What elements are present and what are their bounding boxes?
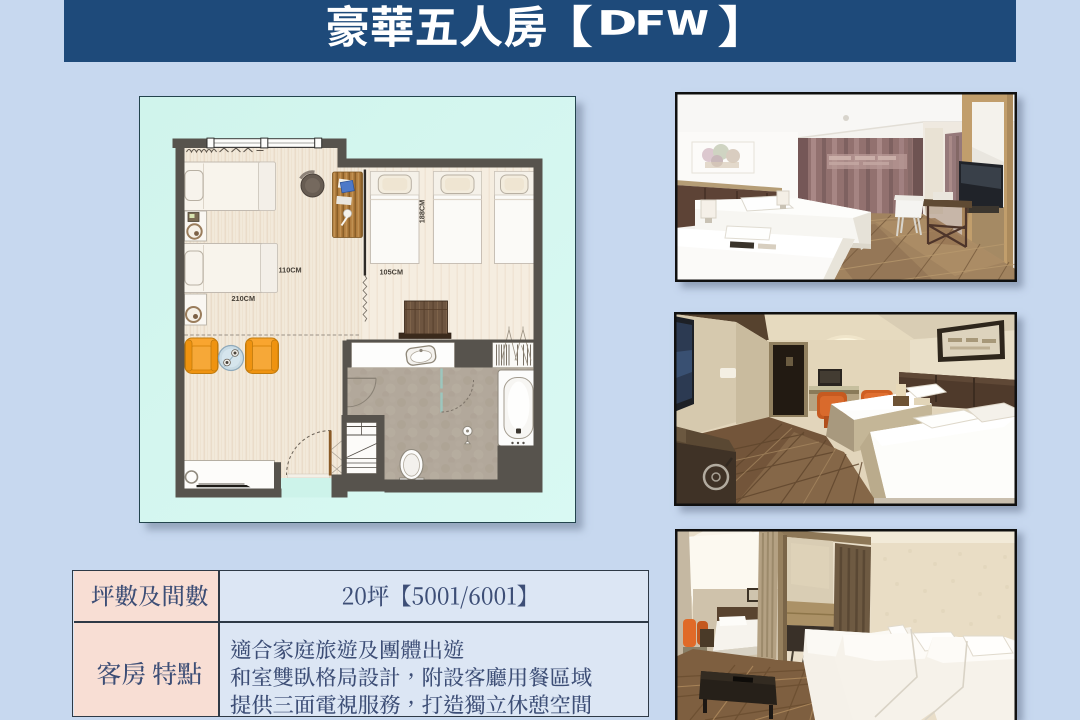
svg-text:188CM: 188CM [417, 199, 426, 223]
svg-text:210CM: 210CM [231, 294, 255, 303]
svg-text:105CM: 105CM [379, 267, 403, 276]
svg-text:110CM: 110CM [278, 265, 301, 274]
